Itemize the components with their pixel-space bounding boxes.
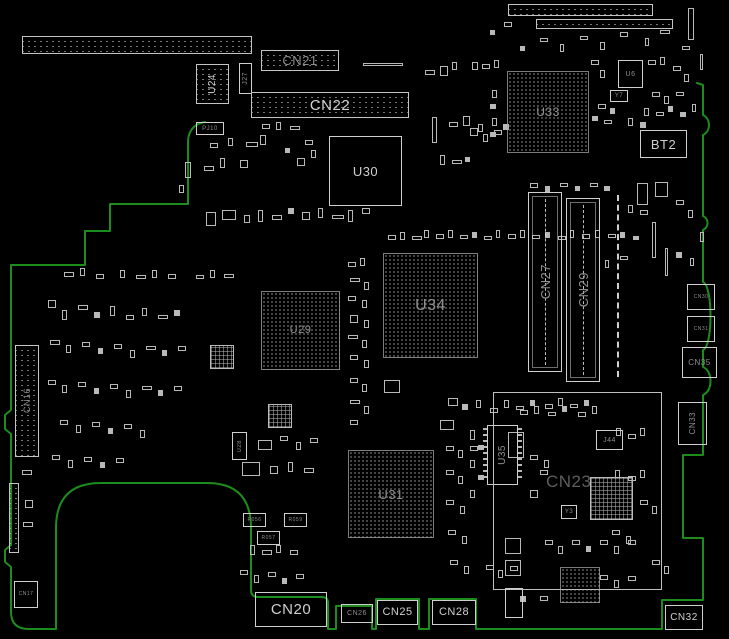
refdes-label-cn30: CN30 xyxy=(694,295,709,300)
component-u34: U34 xyxy=(383,253,478,358)
passive-component xyxy=(22,470,32,475)
passive-component xyxy=(162,350,167,356)
refdes-label-cn28: CN28 xyxy=(439,607,469,618)
component-cn22: CN22 xyxy=(251,92,409,118)
refdes-label-j27: J27 xyxy=(242,72,249,85)
passive-component xyxy=(288,208,294,214)
passive-component xyxy=(220,158,225,168)
passive-component xyxy=(436,234,444,239)
component-unlabeled xyxy=(536,19,673,29)
passive-component xyxy=(580,36,588,40)
passive-component xyxy=(48,300,56,308)
refdes-label-r056: R056 xyxy=(248,518,262,523)
passive-component xyxy=(425,70,435,75)
passive-component xyxy=(174,386,182,391)
passive-component xyxy=(476,400,481,408)
passive-component xyxy=(660,57,665,65)
passive-component xyxy=(470,128,478,136)
passive-component xyxy=(676,200,684,205)
component-cn21: CN21 xyxy=(261,50,339,71)
passive-component xyxy=(262,124,270,129)
passive-component xyxy=(620,232,625,238)
passive-component xyxy=(364,360,369,368)
component-unlabeled xyxy=(590,477,633,520)
passive-component xyxy=(478,124,483,132)
passive-component xyxy=(684,74,689,82)
passive-component xyxy=(179,185,184,193)
passive-component xyxy=(318,208,323,218)
component-j44: J44 xyxy=(596,430,623,450)
passive-component xyxy=(362,300,367,308)
passive-component xyxy=(142,308,147,316)
passive-component xyxy=(664,96,669,104)
passive-component xyxy=(598,104,606,109)
passive-component xyxy=(656,112,664,116)
passive-component xyxy=(470,490,475,498)
component-r059: R059 xyxy=(284,513,307,527)
passive-component xyxy=(268,572,276,577)
passive-component xyxy=(140,430,145,438)
passive-component xyxy=(348,210,353,222)
passive-component xyxy=(688,210,693,218)
refdes-label-cn31: CN31 xyxy=(694,327,709,332)
passive-component xyxy=(575,186,580,191)
passive-component xyxy=(462,536,467,544)
passive-component xyxy=(600,42,605,50)
passive-component xyxy=(462,404,468,410)
passive-component xyxy=(174,310,180,316)
passive-component xyxy=(446,500,454,505)
passive-component xyxy=(68,460,73,468)
passive-component xyxy=(210,143,218,148)
passive-component xyxy=(362,384,367,392)
passive-component xyxy=(600,70,605,78)
passive-component xyxy=(540,38,548,42)
component-unlabeled xyxy=(268,404,292,428)
passive-component xyxy=(688,8,694,40)
passive-component xyxy=(482,64,490,69)
component-cn30: CN30 xyxy=(687,284,715,310)
refdes-label-u33: U33 xyxy=(536,106,560,118)
passive-component xyxy=(136,275,146,279)
passive-component xyxy=(448,530,456,535)
passive-component xyxy=(62,385,67,393)
passive-component xyxy=(158,390,163,396)
passive-component xyxy=(96,274,104,279)
passive-component xyxy=(364,406,369,414)
passive-component xyxy=(508,234,516,239)
passive-component xyxy=(464,566,469,574)
passive-component xyxy=(458,476,463,484)
passive-component xyxy=(110,384,118,389)
passive-component xyxy=(52,455,60,460)
refdes-label-cn26: CN26 xyxy=(347,610,367,617)
component-unlabeled xyxy=(508,4,653,16)
passive-component xyxy=(290,550,298,555)
passive-component xyxy=(424,230,429,238)
passive-component xyxy=(652,222,656,258)
passive-component xyxy=(440,66,448,76)
passive-component xyxy=(280,436,288,441)
passive-component xyxy=(560,44,564,52)
passive-component xyxy=(206,212,216,226)
passive-component xyxy=(62,310,67,320)
passive-component xyxy=(310,438,318,443)
passive-component xyxy=(142,386,152,390)
refdes-label-u30: U30 xyxy=(353,165,378,178)
passive-component xyxy=(490,104,496,109)
passive-component xyxy=(492,118,497,126)
passive-component xyxy=(620,256,628,260)
passive-component xyxy=(124,424,132,429)
passive-component xyxy=(384,380,400,393)
refdes-label-cn22: CN22 xyxy=(310,98,350,113)
passive-component xyxy=(490,30,495,35)
passive-component xyxy=(608,234,616,238)
passive-component xyxy=(665,248,668,276)
passive-component xyxy=(540,596,548,601)
component-cn29: CN29 xyxy=(566,198,600,382)
component-r057: R057 xyxy=(257,531,280,545)
passive-component xyxy=(98,348,103,354)
refdes-label-cn29: CN29 xyxy=(577,272,590,307)
passive-component xyxy=(604,186,610,191)
passive-component xyxy=(332,215,344,219)
passive-component xyxy=(364,320,369,328)
silkscreen-layer: U24J27CN21CN22U30PJ10U33U6Y7BT2U29U34CN2… xyxy=(0,0,729,639)
passive-component xyxy=(305,140,313,145)
passive-component xyxy=(655,182,668,197)
refdes-label-y3: Y3 xyxy=(565,509,573,515)
component-cn33: CN33 xyxy=(678,402,707,445)
passive-component xyxy=(348,296,356,301)
passive-component xyxy=(262,550,272,555)
component-y3: Y3 xyxy=(561,505,577,519)
refdes-label-u6: U6 xyxy=(626,71,636,78)
passive-component xyxy=(388,235,396,240)
passive-component xyxy=(363,63,403,66)
component-unlabeled xyxy=(210,345,234,369)
refdes-label-pj10: PJ10 xyxy=(202,126,218,132)
passive-component xyxy=(288,462,293,472)
component-y7: Y7 xyxy=(610,90,628,102)
passive-component xyxy=(449,122,458,127)
passive-component xyxy=(560,183,568,187)
passive-component xyxy=(452,160,462,164)
component-unlabeled xyxy=(617,195,619,377)
passive-component xyxy=(460,506,465,514)
passive-component xyxy=(483,134,488,142)
passive-component xyxy=(446,470,454,475)
passive-component xyxy=(196,275,204,279)
passive-component xyxy=(692,104,696,112)
passive-component xyxy=(80,268,85,276)
passive-component xyxy=(116,458,124,463)
passive-component xyxy=(272,215,282,220)
passive-component xyxy=(350,315,358,323)
passive-component xyxy=(296,442,301,450)
component-u24: U24 xyxy=(196,64,229,104)
refdes-label-u28: U28 xyxy=(237,440,243,453)
passive-component xyxy=(94,312,100,318)
passive-component xyxy=(258,210,263,222)
passive-component xyxy=(296,574,304,579)
passive-component xyxy=(645,38,649,46)
passive-component xyxy=(458,450,463,458)
refdes-label-cn16: CN16 xyxy=(23,388,32,413)
passive-component xyxy=(492,90,497,98)
passive-component xyxy=(448,230,453,238)
passive-component xyxy=(680,112,686,117)
passive-component xyxy=(78,305,88,310)
passive-component xyxy=(185,162,191,178)
passive-component xyxy=(48,380,56,385)
passive-component xyxy=(126,315,134,320)
passive-component xyxy=(82,342,90,347)
passive-component xyxy=(640,210,648,215)
passive-component xyxy=(660,30,670,34)
passive-component xyxy=(470,446,478,451)
passive-component xyxy=(520,46,525,51)
passive-component xyxy=(222,210,236,220)
passive-component xyxy=(311,150,316,158)
passive-component xyxy=(676,92,684,96)
component-bt2: BT2 xyxy=(640,130,687,158)
passive-component xyxy=(92,422,100,427)
passive-component xyxy=(490,132,496,137)
refdes-label-u24: U24 xyxy=(208,74,218,94)
passive-component xyxy=(110,306,115,316)
passive-component xyxy=(673,66,681,71)
pcb-board: U24J27CN21CN22U30PJ10U33U6Y7BT2U29U34CN2… xyxy=(0,0,729,639)
passive-component xyxy=(628,118,633,126)
refdes-label-r059: R059 xyxy=(289,518,303,523)
refdes-label-cn27: CN27 xyxy=(539,264,552,299)
passive-component xyxy=(605,260,609,268)
passive-component xyxy=(592,116,598,121)
passive-component xyxy=(504,22,512,27)
component-j27: J27 xyxy=(239,63,252,94)
component-pj10: PJ10 xyxy=(196,122,224,135)
passive-component xyxy=(463,116,470,126)
passive-component xyxy=(452,62,457,70)
passive-component xyxy=(604,120,612,124)
passive-component xyxy=(100,462,105,468)
passive-component xyxy=(178,346,186,351)
passive-component xyxy=(362,208,370,214)
passive-component xyxy=(530,183,538,188)
component-cn26: CN26 xyxy=(341,604,373,623)
passive-component xyxy=(470,430,475,440)
passive-component xyxy=(472,62,478,70)
passive-component xyxy=(648,60,656,65)
passive-component xyxy=(350,420,358,425)
passive-component xyxy=(240,570,248,575)
passive-component xyxy=(60,420,68,425)
component-u29: U29 xyxy=(261,291,340,370)
refdes-label-u31: U31 xyxy=(378,488,403,501)
refdes-label-r057: R057 xyxy=(262,536,276,541)
component-unlabeled xyxy=(9,483,19,553)
passive-component xyxy=(130,350,135,358)
component-unlabeled xyxy=(560,567,600,603)
passive-component xyxy=(25,500,33,508)
passive-component xyxy=(637,183,648,205)
refdes-label-cn25: CN25 xyxy=(382,607,412,618)
passive-component xyxy=(64,272,74,277)
passive-component xyxy=(276,545,281,553)
refdes-label-bt2: BT2 xyxy=(651,138,676,151)
passive-component xyxy=(302,212,310,220)
passive-component xyxy=(668,106,673,112)
passive-component xyxy=(644,108,649,116)
passive-component xyxy=(126,390,131,398)
passive-component xyxy=(258,440,272,450)
passive-component xyxy=(494,60,499,68)
component-cn25: CN25 xyxy=(377,600,418,625)
passive-component xyxy=(496,230,500,238)
component-r056: R056 xyxy=(243,513,266,527)
passive-component xyxy=(290,126,300,130)
passive-component xyxy=(146,346,156,350)
component-unlabeled xyxy=(22,36,252,54)
refdes-label-cn20: CN20 xyxy=(271,602,311,617)
passive-component xyxy=(114,344,122,349)
passive-component xyxy=(204,166,214,171)
passive-component xyxy=(240,160,248,168)
passive-component xyxy=(304,468,314,473)
passive-component xyxy=(400,232,405,240)
refdes-label-u29: U29 xyxy=(290,325,312,336)
passive-component xyxy=(440,420,454,430)
passive-component xyxy=(350,278,360,282)
refdes-label-cn32: CN32 xyxy=(670,613,698,623)
component-u31: U31 xyxy=(348,450,434,538)
component-cn28: CN28 xyxy=(432,600,476,625)
passive-component xyxy=(440,155,445,165)
passive-component xyxy=(108,428,113,434)
passive-component xyxy=(590,183,598,187)
passive-component xyxy=(360,258,365,266)
passive-component xyxy=(244,215,250,223)
passive-component xyxy=(682,46,690,50)
passive-component xyxy=(84,457,92,462)
refdes-label-cn17: CN17 xyxy=(19,592,34,597)
passive-component xyxy=(254,575,259,583)
passive-component xyxy=(591,60,599,65)
passive-component xyxy=(448,398,458,406)
component-u33: U33 xyxy=(507,71,589,153)
passive-component xyxy=(460,235,468,239)
passive-component xyxy=(465,157,470,162)
passive-component xyxy=(348,335,358,339)
passive-component xyxy=(364,282,369,290)
pin-row xyxy=(483,428,487,482)
component-cn32: CN32 xyxy=(665,605,703,630)
passive-component xyxy=(620,32,628,37)
passive-component xyxy=(270,466,278,474)
passive-component xyxy=(362,340,367,348)
passive-component xyxy=(66,345,71,353)
passive-component xyxy=(260,135,266,145)
component-cn20: CN20 xyxy=(255,592,327,627)
passive-component xyxy=(94,388,99,394)
passive-component xyxy=(350,355,358,360)
passive-component xyxy=(285,148,290,153)
passive-component xyxy=(23,522,33,527)
passive-component xyxy=(348,262,356,267)
component-u28: U28 xyxy=(232,432,247,460)
component-cn35: CN35 xyxy=(682,347,717,378)
passive-component xyxy=(152,270,157,278)
passive-component xyxy=(76,425,81,433)
passive-component xyxy=(700,54,703,70)
passive-component xyxy=(676,252,682,258)
refdes-label-j44: J44 xyxy=(603,437,616,444)
component-u30: U30 xyxy=(329,136,402,206)
passive-component xyxy=(472,232,477,238)
refdes-label-cn21: CN21 xyxy=(282,54,317,67)
component-u6: U6 xyxy=(618,60,643,88)
passive-component xyxy=(350,378,358,383)
passive-component xyxy=(446,446,454,451)
refdes-label-cn35: CN35 xyxy=(688,359,710,367)
passive-component xyxy=(652,92,660,97)
passive-component xyxy=(242,462,260,476)
component-cn27: CN27 xyxy=(528,192,562,372)
passive-component xyxy=(297,158,305,166)
passive-component xyxy=(450,560,458,565)
passive-component xyxy=(470,460,475,468)
refdes-label-cn33: CN33 xyxy=(689,412,697,434)
refdes-label-cn23: CN23 xyxy=(546,473,591,490)
passive-component xyxy=(412,236,422,240)
passive-component xyxy=(350,400,360,404)
passive-component xyxy=(250,545,255,555)
passive-component xyxy=(640,122,646,128)
passive-component xyxy=(50,340,60,345)
passive-component xyxy=(210,270,215,278)
passive-component xyxy=(432,117,437,143)
passive-component xyxy=(276,122,281,130)
component-unlabeled xyxy=(505,588,523,618)
component-cn23: CN23 xyxy=(493,392,662,590)
passive-component xyxy=(664,566,669,574)
refdes-label-y7: Y7 xyxy=(615,93,623,99)
passive-component xyxy=(228,138,233,146)
component-cn17: CN17 xyxy=(14,581,38,608)
passive-component xyxy=(690,258,694,266)
passive-component xyxy=(520,230,525,238)
passive-component xyxy=(78,382,86,387)
passive-component xyxy=(158,315,168,319)
component-cn16: CN16 xyxy=(15,345,39,457)
passive-component xyxy=(168,274,176,279)
passive-component xyxy=(610,108,615,114)
passive-component xyxy=(120,270,125,278)
passive-component xyxy=(628,205,633,213)
passive-component xyxy=(282,578,287,584)
passive-component xyxy=(633,236,639,240)
component-cn31: CN31 xyxy=(687,316,715,342)
passive-component xyxy=(484,236,492,240)
passive-component xyxy=(246,142,258,147)
passive-component xyxy=(700,232,704,242)
passive-component xyxy=(224,274,234,278)
refdes-label-u34: U34 xyxy=(415,298,446,314)
